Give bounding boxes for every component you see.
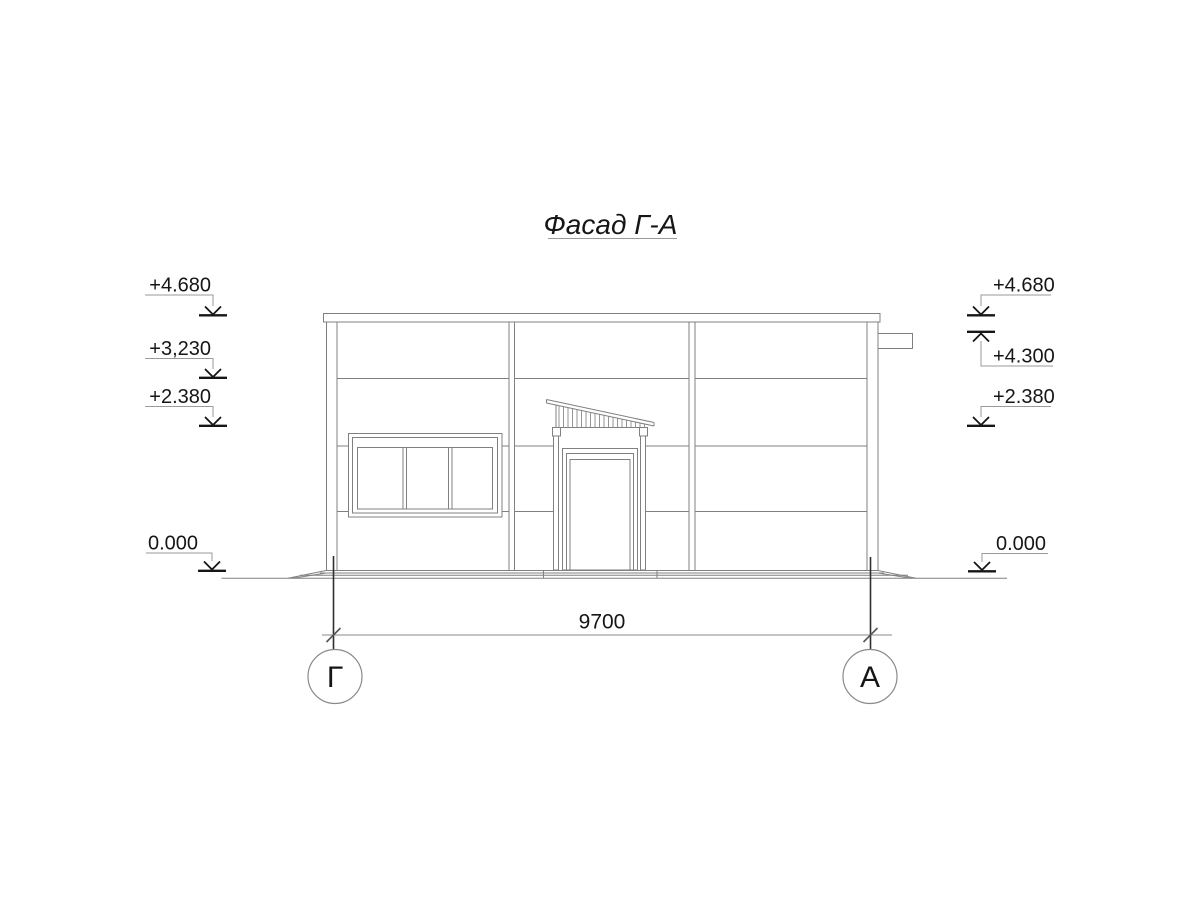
parapet-band xyxy=(324,314,881,323)
elevation-value: +4.680 xyxy=(993,275,1055,297)
window-outer-frame xyxy=(349,434,503,518)
elevation-mark-left-0000: 0.000 xyxy=(146,533,226,571)
elevation-mark-right-4680: +4.680 xyxy=(967,275,1055,316)
door-frame xyxy=(567,454,634,571)
elevation-value: 0.000 xyxy=(996,533,1046,555)
window-mullion-1 xyxy=(403,448,407,509)
canopy-post-cap-left xyxy=(553,428,561,437)
axis-bubble-left: Г xyxy=(308,650,362,704)
canopy-hatch xyxy=(559,406,645,427)
elevation-value: +2.380 xyxy=(993,386,1055,408)
panel-joints xyxy=(337,379,867,512)
window-frame xyxy=(353,438,498,514)
entrance-door xyxy=(563,449,638,571)
canopy-beam xyxy=(547,400,655,427)
elevation-value: +3,230 xyxy=(149,338,211,360)
drawing-sheet: Фасад Г-А xyxy=(0,0,1200,900)
column-right xyxy=(867,322,878,571)
axis-bubble-right: А xyxy=(843,650,897,704)
door-leaf xyxy=(570,460,630,571)
axis-label-left: Г xyxy=(327,661,343,694)
title-text: Фасад Г-А xyxy=(544,209,678,240)
elevation-value: +2.380 xyxy=(149,386,211,408)
porch-step xyxy=(544,571,658,579)
drawing-title: Фасад Г-А xyxy=(544,209,678,240)
dimension-text: 9700 xyxy=(579,611,626,634)
elevation-mark-left-3230: +3,230 xyxy=(145,338,227,378)
elevation-value: +4.300 xyxy=(993,346,1055,368)
canopy-post-right xyxy=(641,436,646,570)
scupper xyxy=(879,334,913,349)
window-mullion-2 xyxy=(449,448,453,509)
column-mid-1 xyxy=(509,322,515,571)
door-outer-frame xyxy=(563,449,638,571)
canopy-post-cap-right xyxy=(640,428,648,437)
axis-label-right: А xyxy=(860,661,880,694)
elevation-mark-right-0000: 0.000 xyxy=(968,533,1048,571)
elevation-mark-right-4300: +4.300 xyxy=(967,332,1055,368)
window xyxy=(349,434,503,518)
elevation-value: 0.000 xyxy=(148,533,198,555)
elevation-mark-right-2380: +2.380 xyxy=(967,386,1055,426)
column-mid-2 xyxy=(689,322,695,571)
canopy-post-left xyxy=(554,436,559,570)
elevation-mark-left-2380: +2.380 xyxy=(145,386,227,426)
plinth-base xyxy=(288,571,916,579)
facade-drawing: Фасад Г-А xyxy=(0,0,1200,900)
window-glass xyxy=(358,448,493,510)
dimension-9700: 9700 xyxy=(322,611,892,643)
elevation-value: +4.680 xyxy=(149,275,211,297)
elevation-mark-left-4680: +4.680 xyxy=(145,275,227,316)
column-left xyxy=(327,322,338,571)
building-facade xyxy=(222,314,1008,579)
